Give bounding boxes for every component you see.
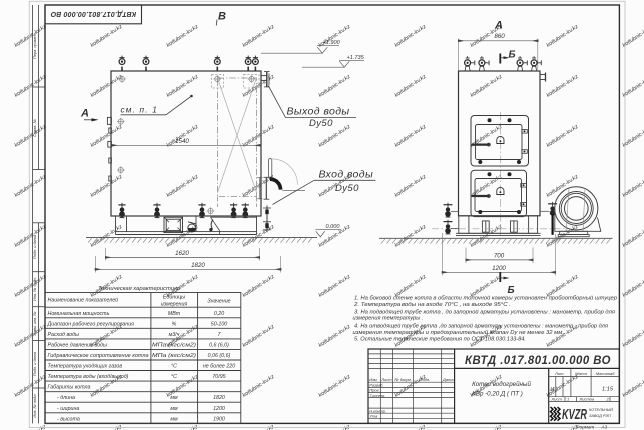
svg-text:КВТД .017.801.00.000 ВО: КВТД .017.801.00.000 ВО	[465, 355, 611, 367]
svg-text:А: А	[80, 108, 89, 120]
svg-text:м3/ч: м3/ч	[169, 332, 180, 338]
svg-text:Выход воды: Выход воды	[287, 106, 350, 118]
svg-text:0,6 (6,0): 0,6 (6,0)	[209, 342, 229, 348]
svg-text:0,20: 0,20	[214, 311, 224, 317]
svg-text:измерения температуры и предох: измерения температуры и предохранительны…	[353, 329, 566, 336]
svg-text:Изм.: Изм.	[369, 377, 378, 382]
svg-text:Т.контр.: Т.контр.	[369, 393, 385, 398]
svg-text:мм: мм	[170, 406, 178, 412]
svg-text:Б: Б	[508, 285, 515, 296]
svg-text:Диапазон рабочего регулировани: Диапазон рабочего регулирования	[47, 321, 135, 327]
svg-text:Масса: Масса	[575, 371, 588, 376]
svg-text:измерения: измерения	[161, 301, 188, 307]
svg-text:1820: 1820	[213, 395, 225, 401]
svg-text:В: В	[218, 11, 226, 23]
svg-text:4. На отводящей трубе котла ,: 4. На отводящей трубе котла ,до запорной…	[354, 322, 608, 329]
svg-text:Масштаб: Масштаб	[596, 371, 615, 376]
svg-text:Лист: Лист	[380, 377, 392, 382]
svg-text:°С: °С	[171, 364, 177, 370]
svg-text:Б: Б	[509, 50, 516, 61]
svg-text:Значение: Значение	[207, 298, 230, 304]
svg-text:1:15: 1:15	[602, 387, 614, 393]
svg-text:1900: 1900	[213, 416, 225, 422]
svg-text:5. Остальные технические треб: 5. Остальные технические требования по О…	[354, 337, 526, 343]
svg-text:Подп.: Подп.	[420, 377, 431, 382]
svg-text:МВт: МВт	[168, 311, 181, 317]
svg-text:Подп. и дата: Подп. и дата	[32, 351, 37, 376]
svg-text:Расход воды: Расход воды	[48, 332, 79, 338]
svg-text:МПа (кгс/см2): МПа (кгс/см2)	[152, 342, 196, 348]
svg-text:Справ. №: Справ. №	[32, 118, 37, 136]
svg-text:70/95: 70/95	[212, 374, 225, 380]
svg-text:860: 860	[494, 33, 505, 40]
svg-text:Дата: Дата	[442, 377, 454, 382]
svg-text:Номинальная мощность: Номинальная мощность	[48, 311, 110, 317]
svg-text:мм: мм	[170, 395, 178, 401]
svg-text:измерения температуры .: измерения температуры .	[353, 316, 424, 322]
svg-text:1200: 1200	[492, 265, 506, 272]
svg-text:1820: 1820	[191, 262, 205, 269]
svg-text:0,06 (0,6): 0,06 (0,6)	[208, 353, 231, 359]
svg-text:А: А	[494, 20, 503, 32]
svg-text:Габариты котла: Габариты котла	[48, 385, 91, 391]
svg-text:1540: 1540	[175, 138, 189, 145]
svg-text:+1.735: +1.735	[347, 55, 365, 61]
svg-text:1. На боковой стенке котла в: 1. На боковой стенке котла в области топ…	[354, 295, 617, 302]
svg-text:+1.900: +1.900	[323, 40, 341, 46]
svg-text:см. п. 1: см. п. 1	[121, 106, 158, 115]
svg-text:Перв. примен.: Перв. примен.	[32, 33, 37, 59]
svg-text:°С: °С	[171, 374, 177, 380]
svg-text:Утв.: Утв.	[369, 414, 378, 419]
svg-text:50-100: 50-100	[211, 321, 228, 327]
svg-text:Взам. инв. №: Взам. инв. №	[32, 311, 37, 336]
svg-text:- длина: - длина	[57, 395, 75, 401]
svg-text:Наименование показателей: Наименование показателей	[48, 297, 119, 304]
svg-text:Техническая характеристика: Техническая характеристика	[98, 286, 181, 292]
svg-text:ЗАВОД РЭП: ЗАВОД РЭП	[589, 414, 611, 418]
svg-text:Вход воды: Вход воды	[319, 169, 374, 181]
svg-text:%: %	[172, 321, 177, 327]
svg-text:Инв. № подл.: Инв. № подл.	[32, 393, 37, 417]
svg-text:Dy50: Dy50	[335, 183, 359, 194]
svg-text:3. На подводящей трубе котла: 3. На подводящей трубе котла , до запорн…	[354, 309, 615, 316]
svg-text:А3: А3	[601, 424, 608, 429]
svg-text:КОТЕЛЬНЫЙ: КОТЕЛЬНЫЙ	[589, 408, 613, 412]
svg-text:Котел водогрейный: Котел водогрейный	[472, 381, 531, 388]
svg-text:Dy50: Dy50	[309, 118, 333, 129]
svg-text:- ширина: - ширина	[57, 406, 79, 412]
svg-text:не более 220: не более 220	[203, 364, 235, 370]
svg-text:1200: 1200	[213, 406, 225, 412]
svg-text:- высота: - высота	[57, 416, 80, 422]
svg-text:Инв. № дубл.: Инв. № дубл.	[32, 277, 37, 301]
svg-text:Единицы: Единицы	[163, 295, 185, 301]
svg-text:Гидравлическое сопротивление к: Гидравлическое сопротивление котла	[48, 353, 149, 359]
svg-text:2. Температура воды на входе: 2. Температура воды на входе 70°С , на в…	[353, 302, 511, 308]
svg-text:Подп. и дата: Подп. и дата	[32, 234, 37, 259]
svg-text:Лит.: Лит.	[554, 371, 564, 376]
svg-text:Температура воды (вход/выход): Температура воды (вход/выход)	[48, 374, 129, 380]
svg-text:0.000: 0.000	[326, 224, 341, 230]
svg-text:№ докум.: № докум.	[394, 377, 412, 382]
svg-text:1620: 1620	[175, 250, 189, 257]
svg-text:Температура уходящих газов: Температура уходящих газов	[48, 364, 123, 370]
svg-text:МПа (кгс/см2): МПа (кгс/см2)	[152, 353, 196, 359]
svg-text:Рабочее давление воды: Рабочее давление воды	[48, 342, 107, 348]
svg-text:1: 1	[567, 397, 569, 402]
svg-text:Листов: Листов	[579, 397, 595, 402]
svg-text:Формат: Формат	[576, 424, 594, 429]
svg-text:мм: мм	[170, 416, 178, 422]
svg-text:700: 700	[494, 253, 505, 260]
svg-text:КВТД.017.801.00.000 ВО: КВТД.017.801.00.000 ВО	[50, 10, 136, 17]
svg-text:Лист: Лист	[551, 397, 563, 402]
svg-text:KVZR: KVZR	[562, 407, 587, 423]
svg-text:КВр -0,20 Д ( ПТ ): КВр -0,20 Д ( ПТ )	[472, 391, 523, 398]
